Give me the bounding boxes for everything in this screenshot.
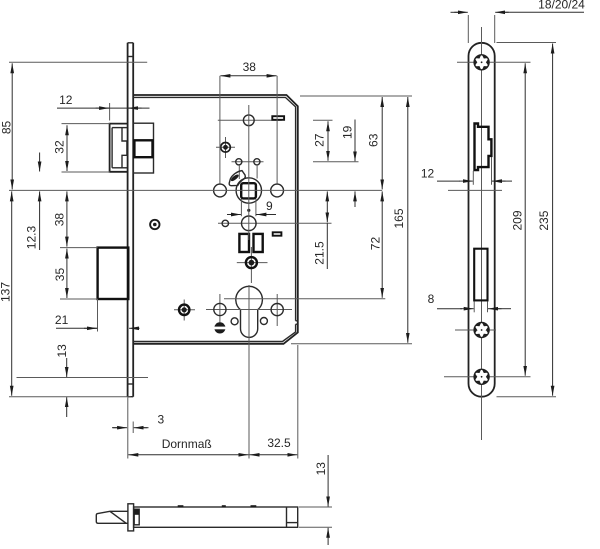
svg-text:27: 27 (313, 133, 327, 147)
svg-text:38: 38 (243, 60, 257, 74)
svg-text:19: 19 (340, 125, 354, 139)
svg-text:85: 85 (0, 121, 13, 135)
svg-text:13: 13 (314, 462, 328, 476)
svg-text:12: 12 (421, 167, 435, 181)
svg-text:21.5: 21.5 (313, 241, 327, 265)
svg-text:Dornmaß: Dornmaß (162, 437, 212, 451)
svg-text:3: 3 (157, 412, 164, 426)
svg-text:63: 63 (367, 133, 381, 147)
svg-text:38: 38 (53, 213, 67, 227)
svg-text:72: 72 (369, 237, 383, 251)
svg-text:18/20/24: 18/20/24 (538, 0, 585, 12)
svg-text:32.5: 32.5 (267, 436, 291, 450)
svg-text:12: 12 (59, 93, 73, 107)
svg-text:209: 209 (510, 210, 524, 230)
svg-text:13: 13 (55, 344, 69, 358)
svg-text:21: 21 (55, 313, 69, 327)
svg-text:165: 165 (392, 208, 406, 228)
svg-text:32: 32 (53, 140, 67, 154)
svg-text:9: 9 (266, 199, 273, 213)
svg-text:235: 235 (537, 210, 551, 230)
svg-text:35: 35 (53, 268, 67, 282)
svg-text:137: 137 (0, 282, 13, 302)
svg-text:12.3: 12.3 (25, 225, 39, 249)
svg-text:8: 8 (428, 292, 435, 306)
